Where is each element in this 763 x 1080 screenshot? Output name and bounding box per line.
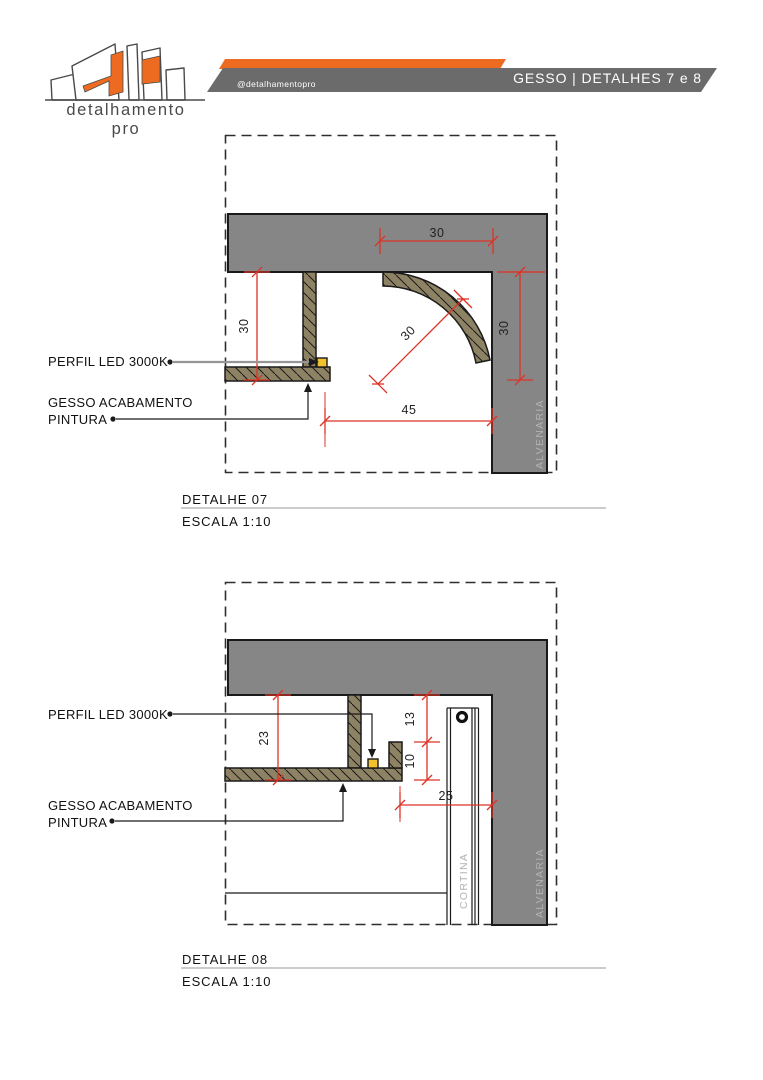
detail08-gypsum-upstand <box>389 742 402 768</box>
detail08-gypsum-vertical <box>348 695 361 768</box>
dim-25-label: 25 <box>439 789 454 803</box>
detail08-drawing: ALVENARIA CORTINA 23 <box>40 575 620 995</box>
dim-top-width-label: 30 <box>430 226 445 240</box>
dim-gap-13-10 <box>414 690 440 785</box>
detail07-gypsum-vertical <box>303 272 316 367</box>
header-orange-strip <box>219 59 506 69</box>
label-gesso-08-line1: GESSO ACABAMENTO <box>48 798 193 813</box>
detail07-slab-wall <box>228 214 547 473</box>
label-led-07: PERFIL LED 3000K <box>48 354 168 369</box>
detail08-masonry-label: ALVENARIA <box>534 848 546 918</box>
dim-right-drop-label: 30 <box>497 321 511 336</box>
detail07-scale: ESCALA 1:10 <box>182 514 271 529</box>
label-led-08: PERFIL LED 3000K <box>48 707 168 722</box>
dim-bottom-offset <box>320 392 497 447</box>
detail07-title: DETALHE 07 <box>182 492 268 507</box>
detail08-scale: ESCALA 1:10 <box>182 974 271 989</box>
header-title: GESSO | DETALHES 7 e 8 <box>513 70 702 86</box>
detail08-title: DETALHE 08 <box>182 952 268 967</box>
dim-10-label: 10 <box>403 754 417 769</box>
detail07-led-profile <box>317 358 327 367</box>
curtain-label: CORTINA <box>458 853 470 909</box>
label-gesso-08-line2: PINTURA <box>48 815 107 830</box>
dim-13-label: 13 <box>403 712 417 727</box>
header-banner: @detalhamentopro GESSO | DETALHES 7 e 8 <box>200 52 763 100</box>
label-gesso-07-line1: GESSO ACABAMENTO <box>48 395 193 410</box>
dim-bottom-offset-label: 45 <box>402 403 417 417</box>
sheet-page: detalhamento pro @detalhamentopro GESSO … <box>0 0 763 1080</box>
instagram-handle: @detalhamentopro <box>237 79 316 89</box>
leader-led-07 <box>167 358 319 366</box>
label-gesso-07-line2: PINTURA <box>48 412 107 427</box>
detail08-led-profile <box>368 759 378 768</box>
detail07-gypsum-cove <box>383 272 490 363</box>
dim-left-drop-label: 30 <box>237 319 251 334</box>
dim-cove-radius <box>369 290 472 393</box>
curtain-rail-icon <box>458 713 467 722</box>
dim-drop-23-label: 23 <box>257 731 271 746</box>
detail07-masonry-label: ALVENARIA <box>534 399 546 469</box>
detail07-gypsum-shelf <box>225 367 330 381</box>
logo-orange-shape-right <box>142 56 160 84</box>
detail08-gypsum-shelf <box>225 768 402 781</box>
leader-led-08 <box>167 711 376 758</box>
dim-cove-radius-label: 30 <box>398 323 418 343</box>
detail07-drawing: ALVENARIA 30 30 30 <box>40 125 620 540</box>
logo-building-icon <box>45 30 207 102</box>
